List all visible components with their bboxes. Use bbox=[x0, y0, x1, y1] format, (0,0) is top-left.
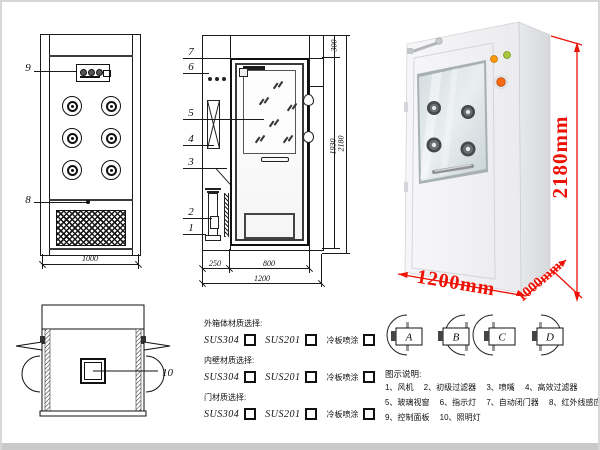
door-config-d: D bbox=[532, 315, 563, 355]
material-option: SUS201 bbox=[265, 408, 317, 420]
door-config-label: A bbox=[405, 332, 413, 344]
door-assembly bbox=[230, 58, 309, 246]
material-group-label: 内壁材质选择: bbox=[204, 355, 390, 367]
air-grille bbox=[56, 210, 126, 246]
material-option: SUS201 bbox=[265, 334, 317, 346]
legend-section: 图示说明: 1、风机 2、初级过滤器 3、喷嘴 4、高效过滤器5、玻璃视窗 6、… bbox=[385, 368, 590, 427]
hinge-tick bbox=[391, 331, 396, 341]
material-option: 冷板喷涂 bbox=[326, 371, 375, 383]
material-checkbox bbox=[363, 408, 375, 420]
nozzle-symbol bbox=[62, 160, 82, 180]
callout-3-leader bbox=[183, 168, 227, 169]
callout-7-label: 7 bbox=[184, 46, 198, 58]
divider-line bbox=[49, 248, 133, 250]
callout-9-label: 9 bbox=[21, 62, 35, 74]
dimension-line bbox=[346, 35, 347, 254]
front-view-drawing bbox=[40, 34, 141, 256]
dimension-line bbox=[42, 264, 138, 265]
display-icon bbox=[103, 70, 111, 77]
dim-2180-label: 2180 bbox=[337, 124, 346, 164]
callout-8-leader bbox=[34, 202, 88, 203]
dim-250-label: 250 bbox=[200, 259, 230, 268]
callout-1-leader bbox=[183, 234, 206, 235]
wall-hatch bbox=[136, 329, 141, 411]
callout-8-label: 8 bbox=[21, 194, 35, 206]
wall-hatch bbox=[45, 329, 50, 411]
gauge-icon bbox=[80, 69, 87, 76]
material-option-label: SUS201 bbox=[265, 335, 300, 346]
nozzle-symbol bbox=[101, 96, 121, 116]
dim-800-label: 800 bbox=[254, 259, 284, 268]
material-option: 冷板喷涂 bbox=[326, 334, 375, 346]
material-option-label: SUS201 bbox=[265, 409, 300, 420]
callout-4-leader bbox=[183, 145, 214, 146]
wall-line bbox=[309, 36, 310, 250]
frame-line bbox=[49, 35, 50, 255]
material-option-label: 冷板喷涂 bbox=[326, 335, 358, 346]
gauge-icon bbox=[88, 69, 95, 76]
nozzle-side-icon bbox=[303, 131, 314, 143]
legend-title: 图示说明: bbox=[385, 368, 590, 382]
callout-1-label: 1 bbox=[184, 222, 198, 234]
material-checkbox bbox=[244, 371, 256, 383]
top-view-drawing: 10 bbox=[12, 300, 192, 425]
callout-6-leader bbox=[183, 73, 209, 74]
door-config-label: C bbox=[498, 332, 506, 344]
extension-line bbox=[138, 254, 139, 269]
door-handle-slot bbox=[261, 157, 289, 162]
material-option: SUS201 bbox=[265, 371, 317, 383]
section-view-drawing bbox=[202, 35, 324, 251]
callout-7-leader bbox=[183, 58, 238, 59]
control-panel bbox=[76, 64, 110, 82]
fan-column bbox=[208, 193, 218, 236]
door-leaf-left bbox=[16, 342, 42, 350]
material-options-row: SUS304SUS201冷板喷涂 bbox=[204, 333, 390, 347]
material-group-label: 门材质选择: bbox=[204, 392, 390, 404]
material-checkbox bbox=[363, 371, 375, 383]
dimension-line bbox=[202, 283, 321, 284]
door-config-diagrams: A B C D bbox=[385, 305, 580, 367]
dim-300-label: 300 bbox=[330, 32, 339, 60]
hinge-icon bbox=[404, 102, 408, 112]
gauge-icon bbox=[96, 69, 103, 76]
material-checkbox bbox=[363, 334, 375, 346]
hepa-filter-symbol bbox=[207, 100, 220, 149]
panel-slot bbox=[80, 76, 100, 78]
plenum-line bbox=[309, 58, 323, 59]
hinge-tick bbox=[438, 331, 443, 341]
dimension-line bbox=[202, 268, 309, 269]
material-checkbox bbox=[305, 334, 317, 346]
material-option-label: 冷板喷涂 bbox=[326, 409, 358, 420]
divider-line bbox=[49, 199, 133, 201]
air-gun-head bbox=[436, 38, 442, 44]
nozzle-symbol bbox=[62, 128, 82, 148]
bottom-border-bar bbox=[2, 443, 598, 450]
glass-mark bbox=[259, 98, 264, 105]
door-config-label: B bbox=[453, 332, 460, 344]
nozzle-side-icon bbox=[303, 94, 314, 106]
door-frame bbox=[235, 63, 304, 241]
material-option-label: SUS304 bbox=[204, 372, 239, 383]
height-dimension-label: 2180mm bbox=[548, 116, 572, 199]
frame-line bbox=[132, 35, 133, 255]
extension-line bbox=[322, 248, 340, 249]
material-option: SUS304 bbox=[204, 334, 256, 346]
glass-mark bbox=[269, 120, 274, 127]
door-config-b: B bbox=[438, 315, 469, 355]
material-option-label: SUS304 bbox=[204, 335, 239, 346]
material-option-label: SUS304 bbox=[204, 409, 239, 420]
material-checkbox bbox=[244, 334, 256, 346]
plenum-outline bbox=[42, 305, 144, 329]
callout-3-label: 3 bbox=[184, 156, 198, 168]
callout-10-label: 10 bbox=[162, 367, 174, 379]
nozzle-symbol bbox=[62, 96, 82, 116]
extension-line bbox=[42, 254, 43, 269]
materials-section: 外箱体材质选择:SUS304SUS201冷板喷涂内壁材质选择:SUS304SUS… bbox=[204, 318, 390, 429]
indicator-dot-icon bbox=[222, 77, 226, 81]
product-photo: 2180mm 1200mm 1000mm bbox=[390, 12, 590, 307]
glass-mark bbox=[273, 82, 278, 89]
material-checkbox bbox=[244, 408, 256, 420]
glass-mark bbox=[283, 136, 288, 143]
door-leaf-right bbox=[144, 342, 170, 350]
air-shower-spec-sheet: 9 8 1000 bbox=[0, 0, 600, 450]
emergency-button bbox=[497, 78, 506, 87]
dim-1200-label: 1200 bbox=[247, 274, 277, 283]
callout-2-leader bbox=[183, 218, 212, 219]
hinge-icon bbox=[404, 182, 408, 192]
door-swing-left bbox=[22, 356, 40, 392]
material-option-label: 冷板喷涂 bbox=[326, 372, 358, 383]
material-option: SUS304 bbox=[204, 408, 256, 420]
cabinet-side-face bbox=[519, 22, 550, 293]
nozzle-symbol bbox=[101, 128, 121, 148]
callout-5-leader bbox=[183, 119, 264, 120]
glass-mark bbox=[255, 136, 260, 143]
door-config-label: D bbox=[545, 332, 554, 344]
material-option: 冷板喷涂 bbox=[326, 408, 375, 420]
divider-line bbox=[49, 55, 133, 57]
indicator-light-orange bbox=[491, 56, 498, 63]
door-closer-arm bbox=[239, 68, 248, 77]
legend-rows: 1、风机 2、初级过滤器 3、喷嘴 4、高效过滤器5、玻璃视窗 6、指示灯 7、… bbox=[385, 382, 590, 427]
wall-section-hatch bbox=[224, 193, 229, 237]
legend-row: 9、控制面板 10、照明灯 bbox=[385, 412, 590, 427]
fan-base bbox=[205, 235, 221, 241]
callout-5-label: 5 bbox=[184, 107, 198, 119]
indicator-light-green bbox=[504, 52, 511, 59]
door-lower-panel bbox=[244, 213, 295, 239]
material-option: SUS304 bbox=[204, 371, 256, 383]
legend-row: 1、风机 2、初级过滤器 3、喷嘴 4、高效过滤器 bbox=[385, 382, 590, 397]
leader-dot bbox=[86, 200, 90, 204]
flange-line bbox=[205, 188, 221, 190]
glass-mark bbox=[287, 104, 292, 111]
hinge-tick bbox=[532, 331, 537, 341]
duct-line bbox=[309, 86, 323, 87]
door-config-c: C bbox=[473, 315, 515, 355]
nozzle-symbol bbox=[101, 160, 121, 180]
indicator-dot-icon bbox=[208, 77, 212, 81]
material-options-row: SUS304SUS201冷板喷涂 bbox=[204, 407, 390, 421]
material-group-label: 外箱体材质选择: bbox=[204, 318, 390, 330]
callout-4-label: 4 bbox=[184, 133, 198, 145]
callout-9-leader bbox=[34, 71, 76, 72]
callout-6-label: 6 bbox=[184, 61, 198, 73]
door-config-a: A bbox=[387, 315, 422, 355]
arm-bracket bbox=[407, 48, 413, 54]
indicator-dot-icon bbox=[215, 77, 219, 81]
material-options-row: SUS304SUS201冷板喷涂 bbox=[204, 370, 390, 384]
callout-2-label: 2 bbox=[184, 206, 198, 218]
dim-1000-label: 1000 bbox=[75, 254, 105, 263]
glass-panel bbox=[243, 70, 296, 154]
legend-row: 5、玻璃视窗 6、指示灯 7、自动闭门器 8、红外线感应器 bbox=[385, 397, 590, 412]
material-checkbox bbox=[305, 371, 317, 383]
material-option-label: SUS201 bbox=[265, 372, 300, 383]
hinge-tick bbox=[484, 331, 489, 341]
base-outline bbox=[40, 411, 146, 416]
material-checkbox bbox=[305, 408, 317, 420]
